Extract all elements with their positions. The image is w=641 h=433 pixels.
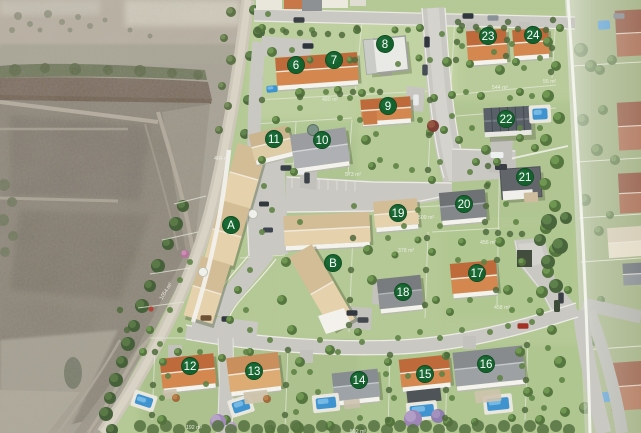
svg-text:19: 19 — [392, 208, 405, 220]
svg-text:458 m²: 458 m² — [494, 305, 510, 311]
svg-text:10: 10 — [316, 135, 329, 147]
svg-text:21: 21 — [519, 172, 532, 184]
svg-text:192 m²: 192 m² — [186, 425, 202, 431]
svg-text:24: 24 — [527, 30, 540, 42]
svg-text:480 m²: 480 m² — [322, 97, 338, 103]
svg-text:456 m²: 456 m² — [480, 240, 496, 246]
svg-text:23: 23 — [482, 31, 495, 43]
svg-text:18: 18 — [397, 287, 410, 299]
svg-text:13: 13 — [248, 366, 261, 378]
svg-text:12: 12 — [184, 361, 197, 373]
svg-text:11: 11 — [268, 134, 280, 146]
svg-text:55 m²: 55 m² — [543, 79, 557, 85]
svg-text:592 m²: 592 m² — [350, 429, 366, 433]
svg-text:509 m²: 509 m² — [418, 215, 434, 221]
svg-text:22: 22 — [500, 114, 513, 126]
svg-text:16: 16 — [480, 359, 493, 371]
svg-text:378 m²: 378 m² — [398, 248, 414, 254]
svg-text:544 m²: 544 m² — [492, 85, 508, 91]
svg-text:B: B — [329, 258, 337, 270]
svg-text:9: 9 — [385, 101, 391, 113]
svg-text:7: 7 — [331, 55, 337, 67]
svg-text:573 m²: 573 m² — [345, 172, 361, 178]
svg-text:A: A — [227, 220, 235, 232]
svg-text:464 m²: 464 m² — [214, 156, 230, 162]
svg-text:6: 6 — [293, 60, 299, 72]
svg-text:14: 14 — [353, 375, 366, 387]
svg-text:20: 20 — [458, 199, 471, 211]
svg-text:17: 17 — [471, 268, 484, 280]
svg-text:15: 15 — [419, 369, 432, 381]
svg-text:8: 8 — [382, 39, 388, 51]
